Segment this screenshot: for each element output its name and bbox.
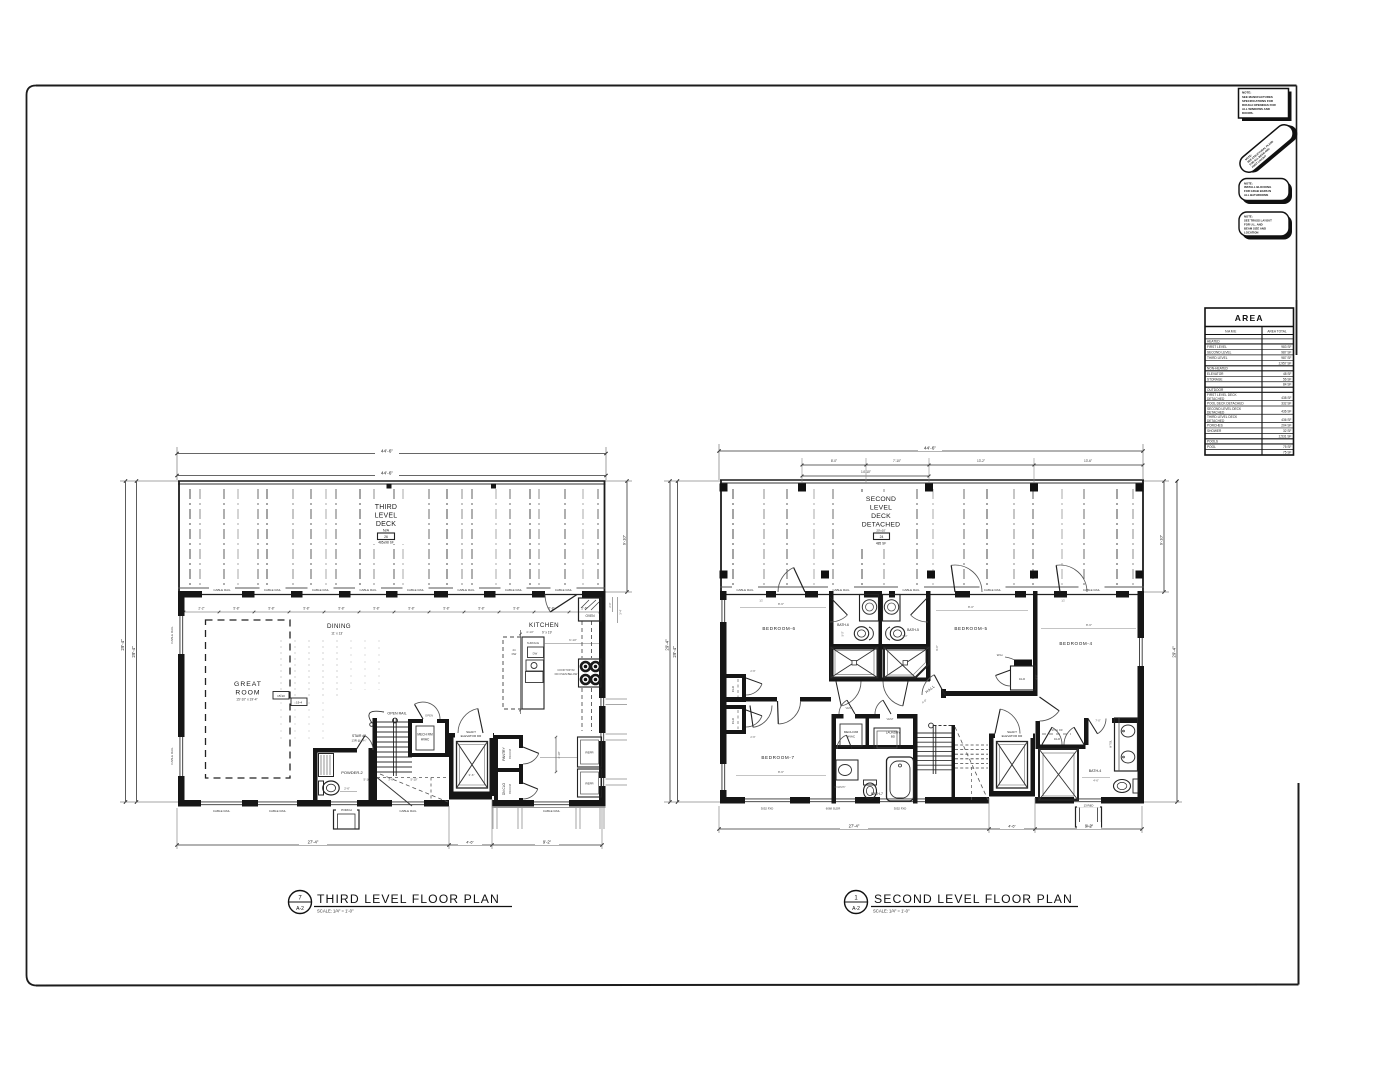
svg-text:CABLE RAIL: CABLE RAIL (505, 588, 523, 592)
svg-text:CABLE RAIL: CABLE RAIL (213, 588, 231, 592)
svg-text:3'-6": 3'-6" (469, 773, 475, 777)
svg-text:BATH-7: BATH-7 (871, 792, 883, 796)
svg-text:987 SF: 987 SF (1281, 356, 1291, 360)
svg-text:OVEN: OVEN (585, 614, 595, 618)
svg-text:5'-8": 5'-8" (443, 606, 449, 610)
svg-text:5'-8": 5'-8" (233, 606, 239, 610)
svg-text:BROOM: BROOM (508, 749, 512, 759)
svg-text:3'-4": 3'-4" (619, 609, 623, 614)
svg-text:26: 26 (384, 535, 388, 539)
svg-text:485 SF: 485 SF (876, 542, 886, 546)
svg-text:9' x 19': 9' x 19' (542, 631, 552, 635)
svg-text:4'-10": 4'-10" (526, 630, 534, 634)
svg-text:GREAT: GREAT (234, 681, 262, 688)
svg-text:BEDROOM-6: BEDROOM-6 (762, 626, 795, 631)
svg-text:5'-0": 5'-0" (842, 631, 845, 636)
svg-text:44'-6": 44'-6" (381, 449, 394, 455)
svg-text:485±98 SF: 485±98 SF (378, 541, 394, 545)
svg-text:24: 24 (880, 535, 884, 539)
svg-text:OPEN RAIL: OPEN RAIL (387, 712, 406, 716)
svg-text:13'-6": 13'-6" (1084, 459, 1092, 463)
svg-text:332 SF: 332 SF (1281, 401, 1291, 405)
svg-text:CLO: CLO (1054, 737, 1061, 741)
svg-text:8'-0": 8'-0" (968, 605, 974, 609)
svg-text:VENT: VENT (846, 706, 853, 710)
svg-text:29'-4": 29'-4" (665, 639, 670, 651)
svg-text:A-2: A-2 (852, 906, 860, 912)
svg-text:W TOIL: W TOIL (1111, 739, 1113, 748)
svg-text:FIRST LEVEL: FIRST LEVEL (1207, 345, 1227, 349)
svg-text:CABLE RAIL: CABLE RAIL (984, 588, 1002, 592)
svg-text:AREA TOTAL: AREA TOTAL (1267, 329, 1287, 333)
svg-text:CABLE RAIL: CABLE RAIL (170, 626, 174, 644)
svg-text:8'-6": 8'-6" (1086, 623, 1092, 627)
svg-text:W.H.: W.H. (997, 653, 1004, 657)
svg-text:BATH-5: BATH-5 (907, 628, 919, 632)
svg-text:POWDER-2: POWDER-2 (341, 770, 363, 775)
svg-text:27'-4": 27'-4" (308, 840, 319, 845)
svg-text:MECH RM: MECH RM (844, 730, 859, 734)
svg-text:44'-6": 44'-6" (381, 471, 394, 477)
svg-text:8'-0": 8'-0" (831, 459, 837, 463)
svg-text:DW: DW (533, 652, 538, 656)
svg-text:ELEVATOR DR: ELEVATOR DR (1002, 734, 1024, 738)
svg-text:987 SF: 987 SF (1281, 350, 1291, 354)
svg-text:44'-6": 44'-6" (924, 446, 937, 452)
svg-text:2,531 SF: 2,531 SF (1279, 434, 1292, 438)
svg-text:N/A: N/A (383, 529, 390, 533)
svg-text:13'-2": 13'-2" (977, 459, 985, 463)
svg-text:LEVEL: LEVEL (870, 505, 892, 512)
svg-text:THIRD LEVEL: THIRD LEVEL (1207, 356, 1228, 360)
svg-text:HVAC: HVAC (847, 735, 856, 739)
svg-text:8'-6": 8'-6" (778, 770, 784, 774)
svg-text:DW: DW (512, 652, 517, 656)
svg-text:BATH-6: BATH-6 (837, 623, 849, 627)
svg-text:2'-0": 2'-0" (608, 602, 612, 607)
svg-text:POOL: POOL (1207, 445, 1216, 449)
svg-text:BATH-4: BATH-4 (1089, 769, 1102, 773)
svg-text:75 SF: 75 SF (1283, 445, 1292, 449)
svg-text:5'-10": 5'-10" (410, 778, 417, 782)
svg-text:CABLE RAIL: CABLE RAIL (457, 588, 475, 592)
svg-text:27'-4": 27'-4" (849, 824, 860, 829)
svg-text:29'-4": 29'-4" (131, 646, 136, 658)
svg-text:5'-8": 5'-8" (513, 606, 519, 610)
svg-text:CABLE RAIL: CABLE RAIL (736, 588, 754, 592)
svg-text:REFR: REFR (585, 751, 594, 755)
svg-text:CABLE RAIL: CABLE RAIL (832, 588, 850, 592)
svg-text:CLO: CLO (731, 685, 735, 692)
svg-text:POOLS: POOLS (1207, 439, 1218, 443)
svg-text:DN CLO: DN CLO (502, 782, 506, 795)
svg-text:204 SF: 204 SF (1281, 423, 1291, 427)
svg-text:9'-10": 9'-10" (622, 534, 627, 545)
svg-text:5'-8": 5'-8" (268, 606, 274, 610)
svg-text:POOL DECK DETACHED: POOL DECK DETACHED (1207, 401, 1244, 405)
svg-text:436 SF: 436 SF (1281, 410, 1291, 414)
svg-text:75 SF: 75 SF (1283, 451, 1292, 455)
svg-text:THIRD: THIRD (375, 504, 397, 511)
svg-text:29'-4": 29'-4" (672, 646, 677, 658)
svg-text:CLO: CLO (731, 717, 735, 724)
svg-text:9'-2": 9'-2" (543, 840, 552, 845)
svg-text:STORAGE: STORAGE (1207, 377, 1223, 381)
svg-text:983 SF: 983 SF (1281, 345, 1291, 349)
svg-text:5'-8": 5'-8" (478, 606, 484, 610)
svg-text:13 R&D: 13 R&D (1084, 804, 1094, 808)
svg-text:5'-8": 5'-8" (408, 606, 414, 610)
svg-text:DETACHED: DETACHED (862, 522, 900, 529)
svg-text:ROOM: ROOM (235, 690, 260, 697)
svg-text:20'x10': 20'x10' (876, 529, 886, 533)
svg-text:4'-0": 4'-0" (1035, 674, 1039, 679)
svg-text:2'-2": 2'-2" (198, 606, 204, 610)
svg-text:4'-6": 4'-6" (1008, 825, 1016, 829)
svg-text:A-2: A-2 (296, 906, 304, 912)
svg-text:DECK: DECK (376, 521, 396, 528)
svg-text:11' x 13': 11' x 13' (331, 632, 343, 636)
svg-text:56 SF: 56 SF (1283, 377, 1292, 381)
svg-text:SECOND LEVEL FLOOR PLAN: SECOND LEVEL FLOOR PLAN (874, 892, 1073, 906)
svg-text:5'-8": 5'-8" (373, 606, 379, 610)
svg-text:SCALE: 1/4" = 1'-0": SCALE: 1/4" = 1'-0" (873, 909, 910, 914)
svg-text:BROOM: BROOM (508, 784, 512, 794)
svg-text:7'-0": 7'-0" (1095, 719, 1100, 723)
svg-text:3'-6": 3'-6" (388, 778, 394, 782)
svg-text:ELEVATOR: ELEVATOR (1207, 372, 1224, 376)
svg-text:9'-10": 9'-10" (1159, 534, 1164, 545)
svg-text:SURFACE: SURFACE (527, 641, 540, 645)
svg-text:9'-0": 9'-0" (935, 645, 939, 651)
svg-text:SECOND: SECOND (866, 496, 896, 503)
svg-text:DOORS.: DOORS. (1242, 111, 1254, 115)
svg-text:CABLE RAIL: CABLE RAIL (312, 588, 330, 592)
svg-text:MECH RM: MECH RM (417, 733, 433, 737)
svg-text:ELEVATOR DR: ELEVATOR DR (461, 734, 483, 738)
svg-text:32 SF: 32 SF (1283, 429, 1292, 433)
svg-text:48 SF: 48 SF (1283, 372, 1292, 376)
svg-text:436 SF: 436 SF (1281, 418, 1291, 422)
svg-text:CABLE RAIL: CABLE RAIL (543, 809, 561, 813)
svg-text:M VANITY: M VANITY (834, 786, 846, 789)
svg-text:DD OVEN BELOW: DD OVEN BELOW (555, 672, 578, 676)
svg-text:5'-8": 5'-8" (338, 606, 344, 610)
svg-text:29'-4": 29'-4" (120, 639, 125, 651)
svg-text:15'-10" x 19'-4": 15'-10" x 19'-4" (236, 698, 257, 702)
svg-text:BEDROOM-4: BEDROOM-4 (1059, 641, 1092, 646)
svg-text:CABLE RAIL: CABLE RAIL (399, 809, 417, 813)
svg-text:SCALE: 1/4" = 1'-0": SCALE: 1/4" = 1'-0" (317, 909, 354, 914)
svg-text:2'-6": 2'-6" (750, 735, 755, 739)
svg-text:3052 FXD: 3052 FXD (761, 806, 774, 810)
svg-text:4'-0": 4'-0" (1087, 825, 1093, 829)
svg-text:5'-8": 5'-8" (303, 606, 309, 610)
svg-text:DINING: DINING (327, 623, 351, 630)
svg-text:CABLE RAIL: CABLE RAIL (213, 809, 231, 813)
svg-text:438 SF: 438 SF (1281, 396, 1291, 400)
svg-text:84 SF: 84 SF (1283, 383, 1292, 387)
svg-text:HVAC: HVAC (421, 738, 430, 742)
svg-text:2'-6": 2'-6" (750, 669, 755, 673)
svg-text:OUTDOOR: OUTDOOR (1207, 388, 1224, 392)
svg-text:CABLE RAIL: CABLE RAIL (269, 809, 287, 813)
svg-text:7'-10": 7'-10" (893, 459, 901, 463)
svg-text:CLO: CLO (1019, 677, 1026, 681)
svg-text:THIRD LEVEL FLOOR PLAN: THIRD LEVEL FLOOR PLAN (317, 892, 500, 906)
svg-text:5'-0": 5'-0" (903, 635, 908, 638)
svg-text:6068 SLDR: 6068 SLDR (826, 806, 840, 810)
svg-text:8'-6": 8'-6" (778, 602, 784, 606)
svg-text:LOCATION: LOCATION (1244, 230, 1258, 234)
svg-text:LEVEL: LEVEL (375, 513, 398, 520)
svg-text:4'-6": 4'-6" (466, 841, 474, 845)
svg-text:NON-HEATED: NON-HEATED (1207, 366, 1229, 370)
svg-text:NAME: NAME (1225, 329, 1237, 333)
svg-text:PANTRY: PANTRY (502, 747, 506, 761)
svg-text:19-4: 19-4 (296, 701, 302, 705)
svg-text:DECK: DECK (871, 513, 891, 520)
svg-text:PORCH: PORCH (341, 808, 351, 812)
svg-text:CABLE RAIL: CABLE RAIL (170, 747, 174, 765)
svg-text:CABLE RAIL: CABLE RAIL (407, 588, 425, 592)
svg-text:CABLE RAIL: CABLE RAIL (555, 588, 573, 592)
svg-text:KITCHEN: KITCHEN (529, 622, 559, 629)
svg-text:SHOWER: SHOWER (1207, 429, 1222, 433)
svg-text:4'-6": 4'-6" (1093, 779, 1099, 783)
svg-text:COOKTOP W/: COOKTOP W/ (557, 668, 575, 672)
svg-text:2'-6": 2'-6" (344, 787, 350, 791)
svg-text:REFR: REFR (585, 782, 594, 786)
svg-text:CABLE RAIL: CABLE RAIL (264, 588, 282, 592)
svg-text:3052 FXD: 3052 FXD (894, 806, 907, 810)
svg-text:ALL BATHROOMS: ALL BATHROOMS (1244, 193, 1268, 197)
svg-text:CABLE RAIL: CABLE RAIL (1083, 588, 1101, 592)
svg-text:SECOND LEVEL: SECOND LEVEL (1207, 350, 1232, 354)
svg-text:AREA: AREA (1235, 313, 1264, 323)
svg-text:BEDROOM-7: BEDROOM-7 (761, 755, 794, 760)
svg-text:VENT: VENT (887, 717, 894, 721)
svg-text:BEDROOM-5: BEDROOM-5 (954, 626, 987, 631)
svg-text:CABLE RAIL: CABLE RAIL (902, 588, 920, 592)
svg-text:29'-4": 29'-4" (1172, 646, 1177, 658)
svg-text:13R @ 7¾": 13R @ 7¾" (352, 739, 367, 743)
svg-text:2,957 SF: 2,957 SF (1279, 361, 1292, 365)
svg-text:PORCHES: PORCHES (1207, 423, 1223, 427)
svg-text:CABLE RAIL: CABLE RAIL (359, 588, 377, 592)
svg-text:HEATED: HEATED (1207, 339, 1220, 343)
svg-text:6'-10": 6'-10" (569, 638, 577, 642)
svg-text:OPEN: OPEN (425, 714, 433, 718)
